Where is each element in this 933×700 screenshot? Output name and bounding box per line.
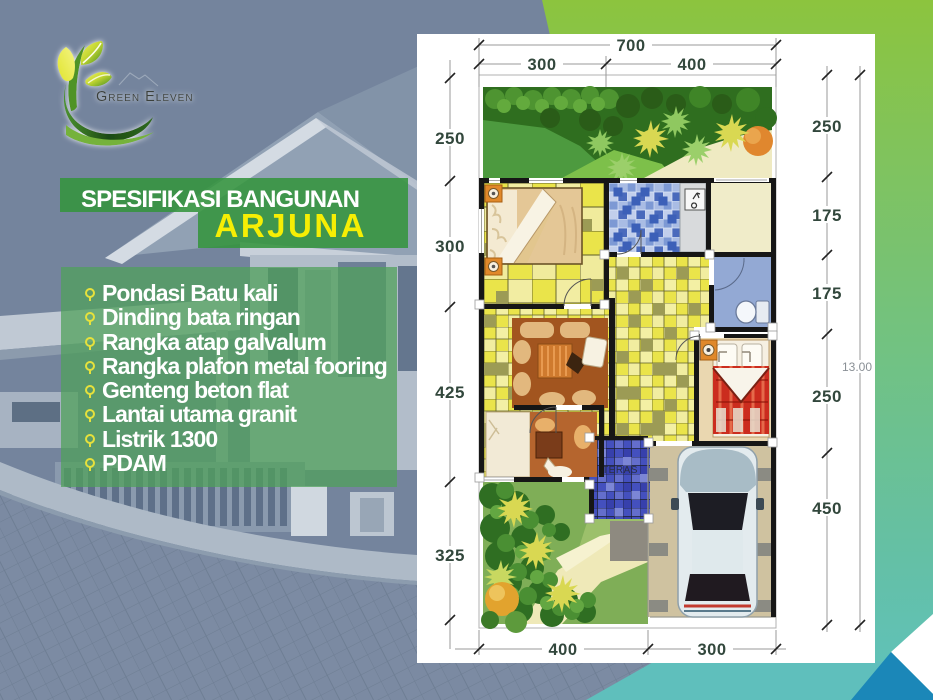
svg-text:325: 325 (435, 546, 465, 565)
svg-text:700: 700 (616, 37, 645, 55)
svg-text:400: 400 (677, 56, 706, 74)
svg-text:300: 300 (527, 56, 556, 74)
svg-text:250: 250 (812, 387, 842, 406)
svg-text:425: 425 (435, 383, 465, 402)
svg-text:Green Eleven: Green Eleven (96, 89, 194, 105)
svg-text:400: 400 (548, 641, 577, 659)
svg-text:250: 250 (435, 129, 465, 148)
svg-text:13.00: 13.00 (842, 360, 872, 374)
svg-text:250: 250 (812, 117, 842, 136)
svg-text:175: 175 (812, 284, 842, 303)
svg-text:450: 450 (812, 499, 842, 518)
svg-text:TERAS: TERAS (602, 465, 638, 476)
svg-text:300: 300 (697, 641, 726, 659)
svg-text:300: 300 (435, 237, 465, 256)
svg-text:175: 175 (812, 206, 842, 225)
